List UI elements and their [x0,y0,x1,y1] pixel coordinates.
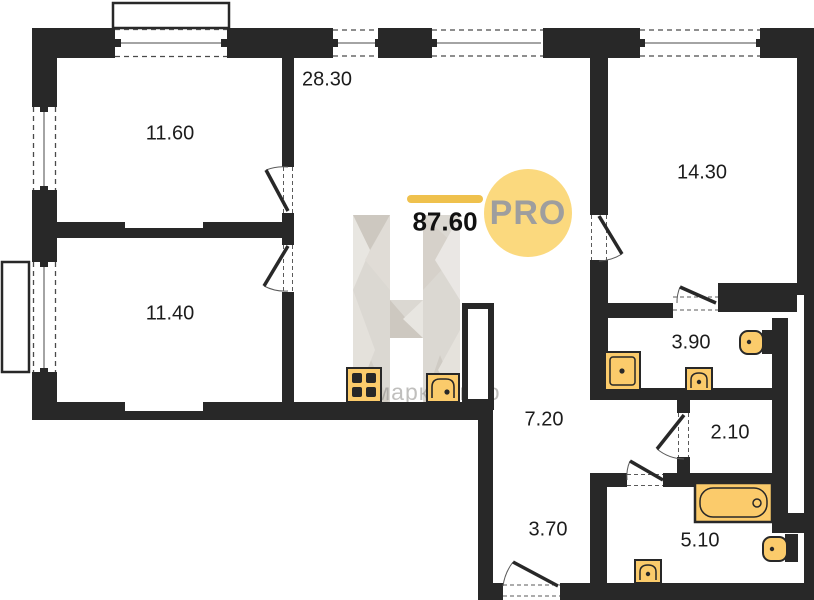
kitchen-sink-icon [427,374,459,402]
room-area-label-bathroom-main: 5.10 [681,530,720,553]
balcony-left [2,262,29,372]
fixtures [347,331,787,583]
window [34,260,56,375]
floor-plan: н-маркет.про [0,0,814,600]
washbasin-icon [686,368,712,391]
door [673,287,718,310]
room-area-label-storage: 2.10 [711,422,750,445]
room-area-label-entry-hall: 3.70 [529,519,568,542]
logo-accent-bar [407,195,483,203]
room-area-label-bedroom-2: 14.30 [677,162,727,185]
windows [34,30,764,376]
pro-logo: PRO [484,169,572,257]
door [592,215,623,261]
room-area-label-living-kitchen: 28.30 [302,69,352,92]
window [114,30,228,57]
stove-icon [347,368,381,402]
door [627,461,663,486]
pro-logo-text: PRO [490,194,567,233]
door [266,167,293,213]
room-area-label-bedroom-1: 11.60 [146,123,195,146]
window [638,30,763,56]
room-area-label-bathroom-ensuite: 3.90 [672,332,711,355]
toilet-icon [763,537,787,561]
entrance-door [503,562,560,596]
door [657,413,689,459]
room-area-label-hallway: 7.20 [525,409,564,432]
total-area-label: 87.60 [412,207,477,238]
window [34,105,56,193]
bathtub-icon [695,483,772,522]
plan-drawing [0,0,814,600]
shower-icon [605,352,640,390]
balcony-top [113,3,229,28]
window [331,30,382,56]
toilet-icon [740,331,763,354]
room-area-label-bedroom-3: 11.40 [146,303,195,326]
door [264,245,293,292]
window [430,30,543,56]
washbasin-icon [635,560,661,583]
